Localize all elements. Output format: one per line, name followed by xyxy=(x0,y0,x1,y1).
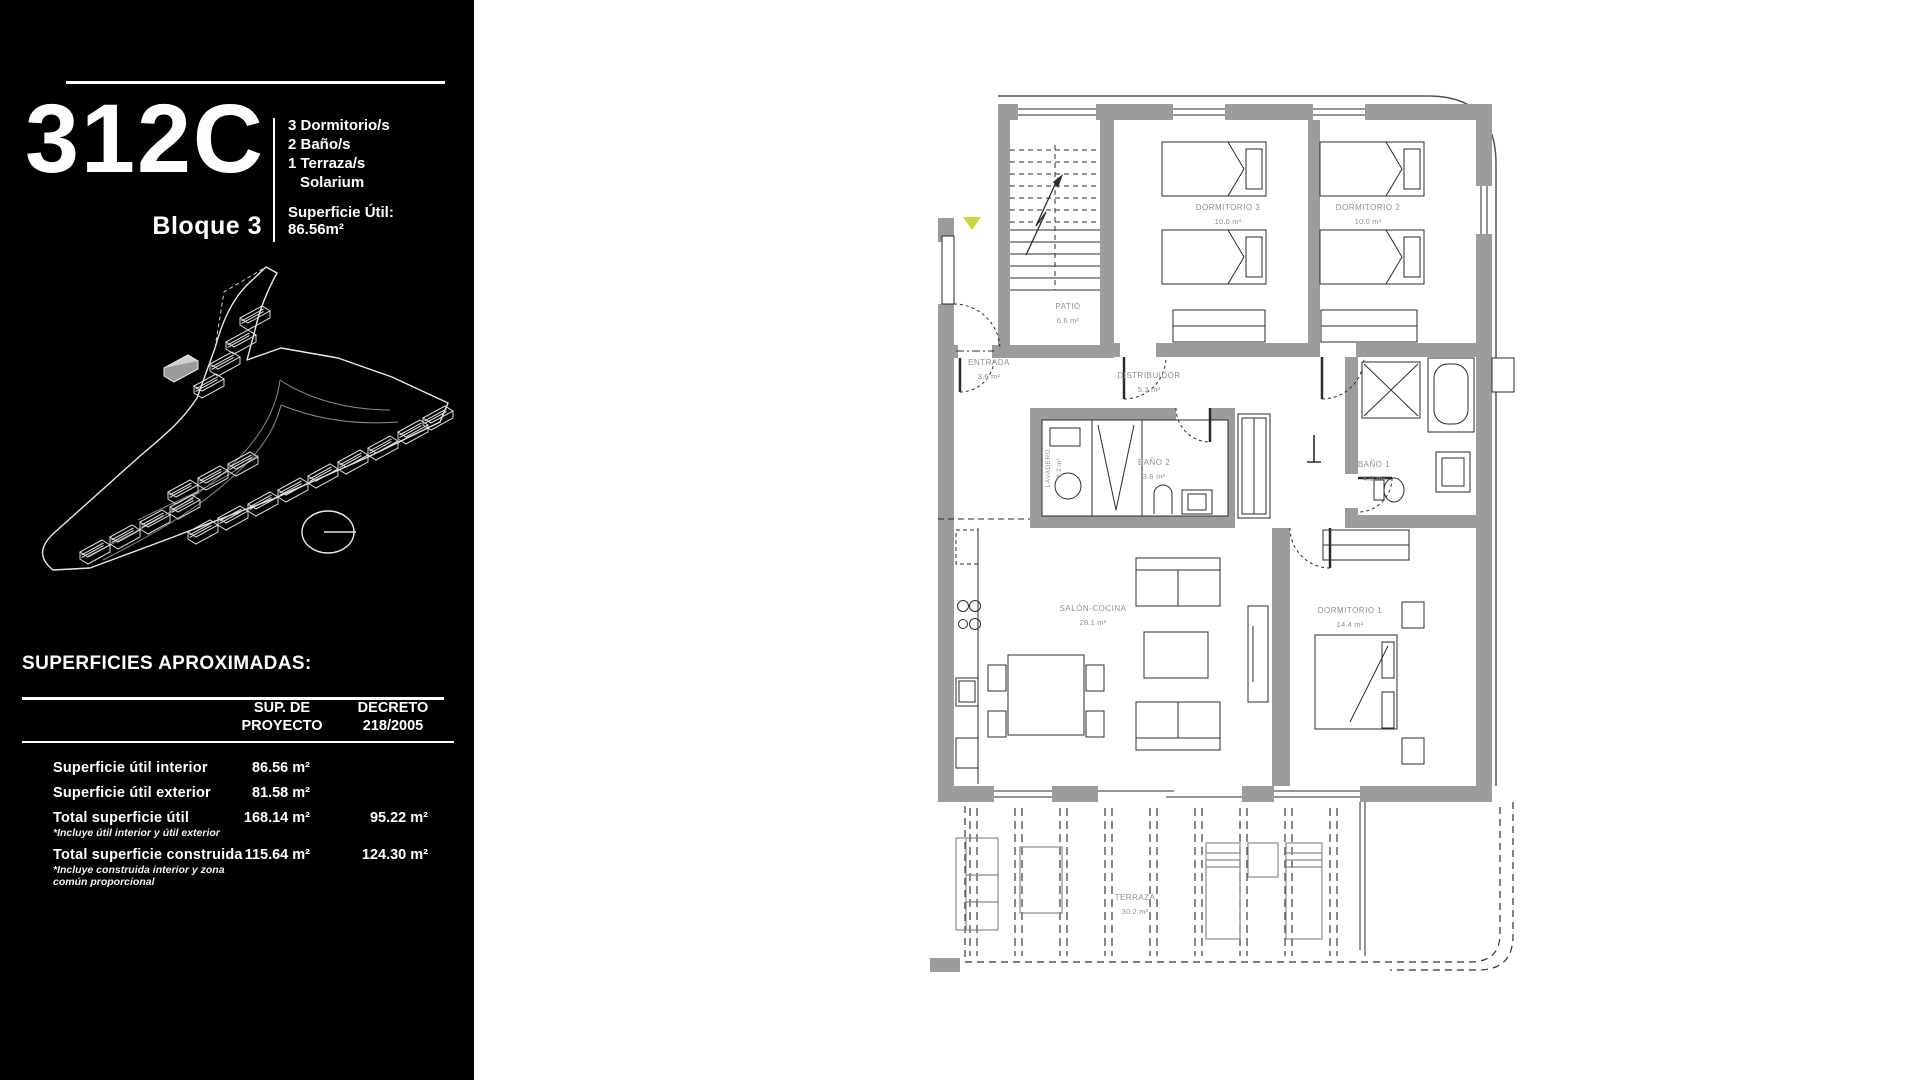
svg-text:5.3 m²: 5.3 m² xyxy=(1138,385,1161,394)
svg-text:10.0 m²: 10.0 m² xyxy=(1355,217,1382,226)
svg-text:14.4 m²: 14.4 m² xyxy=(1337,620,1364,629)
room-label-terraza: TERRAZA xyxy=(1115,893,1156,902)
feature-terrace: 1 Terraza/s xyxy=(288,154,390,173)
svg-text:6.6 m²: 6.6 m² xyxy=(1057,316,1080,325)
feature-solarium: Solarium xyxy=(288,173,390,192)
surface-util: Superficie Útil: 86.56m² xyxy=(288,204,394,238)
svg-text:1.2 m²: 1.2 m² xyxy=(1056,458,1063,478)
site-highlighted-building xyxy=(164,355,198,382)
header-divider xyxy=(273,118,275,242)
room-label-bano1: BAÑO 1 xyxy=(1358,460,1390,469)
unit-code: 312C xyxy=(16,86,274,193)
entry-marker xyxy=(963,217,981,230)
superficies-rule-mid xyxy=(22,741,454,743)
room-label-patio: PATIO xyxy=(1055,302,1080,311)
kitchen-living-furniture xyxy=(938,519,1268,784)
column-header-decreto: DECRETO 218/2005 xyxy=(333,699,453,735)
floor-plan: PATIO 6.6 m² DORMITORIO 3 10.0 m² DORMIT… xyxy=(930,90,1520,990)
column-header-sup-proyecto: SUP. DE PROYECTO xyxy=(222,699,342,735)
site-boundary xyxy=(43,267,448,570)
unit-features: 3 Dormitorio/s 2 Baño/s 1 Terraza/s Sola… xyxy=(288,116,390,192)
svg-text:3.6 m²: 3.6 m² xyxy=(1143,472,1166,481)
room-label-lavadero: LAVADERO xyxy=(1045,449,1052,487)
room-label-entrada: ENTRADA xyxy=(968,358,1010,367)
compass-icon xyxy=(302,511,356,553)
sidebar-panel: 312C 3 Dormitorio/s 2 Baño/s 1 Terraza/s… xyxy=(0,0,474,1080)
room-label-salon-cocina: SALÓN-COCINA xyxy=(1060,604,1127,613)
svg-text:30.2 m²: 30.2 m² xyxy=(1122,907,1149,916)
bedroom2-furniture xyxy=(1320,142,1424,399)
room-label-dormitorio3: DORMITORIO 3 xyxy=(1196,203,1261,212)
terrace xyxy=(956,802,1513,970)
superficies-title: SUPERFICIES APROXIMADAS: xyxy=(22,653,312,675)
feature-bathrooms: 2 Baño/s xyxy=(288,135,390,154)
bathroom-block xyxy=(1042,408,1228,516)
room-label-distribuidor: DISTRIBUIDOR xyxy=(1117,371,1180,380)
hall-wardrobe xyxy=(1238,414,1270,518)
surface-util-value: 86.56m² xyxy=(288,221,394,238)
room-label-dormitorio2: DORMITORIO 2 xyxy=(1336,203,1401,212)
stairwell xyxy=(1010,145,1100,290)
bedroom3-furniture xyxy=(1124,142,1266,399)
svg-text:4.0 m²: 4.0 m² xyxy=(1363,474,1386,483)
surface-util-label: Superficie Útil: xyxy=(288,204,394,221)
svg-text:10.0 m²: 10.0 m² xyxy=(1215,217,1242,226)
svg-text:3.6 m²: 3.6 m² xyxy=(978,372,1001,381)
site-plan-graphic xyxy=(18,260,458,590)
room-label-bano2: BAÑO 2 xyxy=(1138,458,1170,467)
block-label: Bloque 3 xyxy=(60,212,262,241)
bathroom1-fixtures xyxy=(1358,358,1474,512)
room-label-dormitorio1: DORMITORIO 1 xyxy=(1318,606,1383,615)
feature-bedrooms: 3 Dormitorio/s xyxy=(288,116,390,135)
svg-text:28.1 m²: 28.1 m² xyxy=(1080,618,1107,627)
site-buildings xyxy=(80,306,453,564)
plan-sheet-page: 312C 3 Dormitorio/s 2 Baño/s 1 Terraza/s… xyxy=(0,0,1920,1080)
bedroom1-furniture xyxy=(1290,528,1424,764)
